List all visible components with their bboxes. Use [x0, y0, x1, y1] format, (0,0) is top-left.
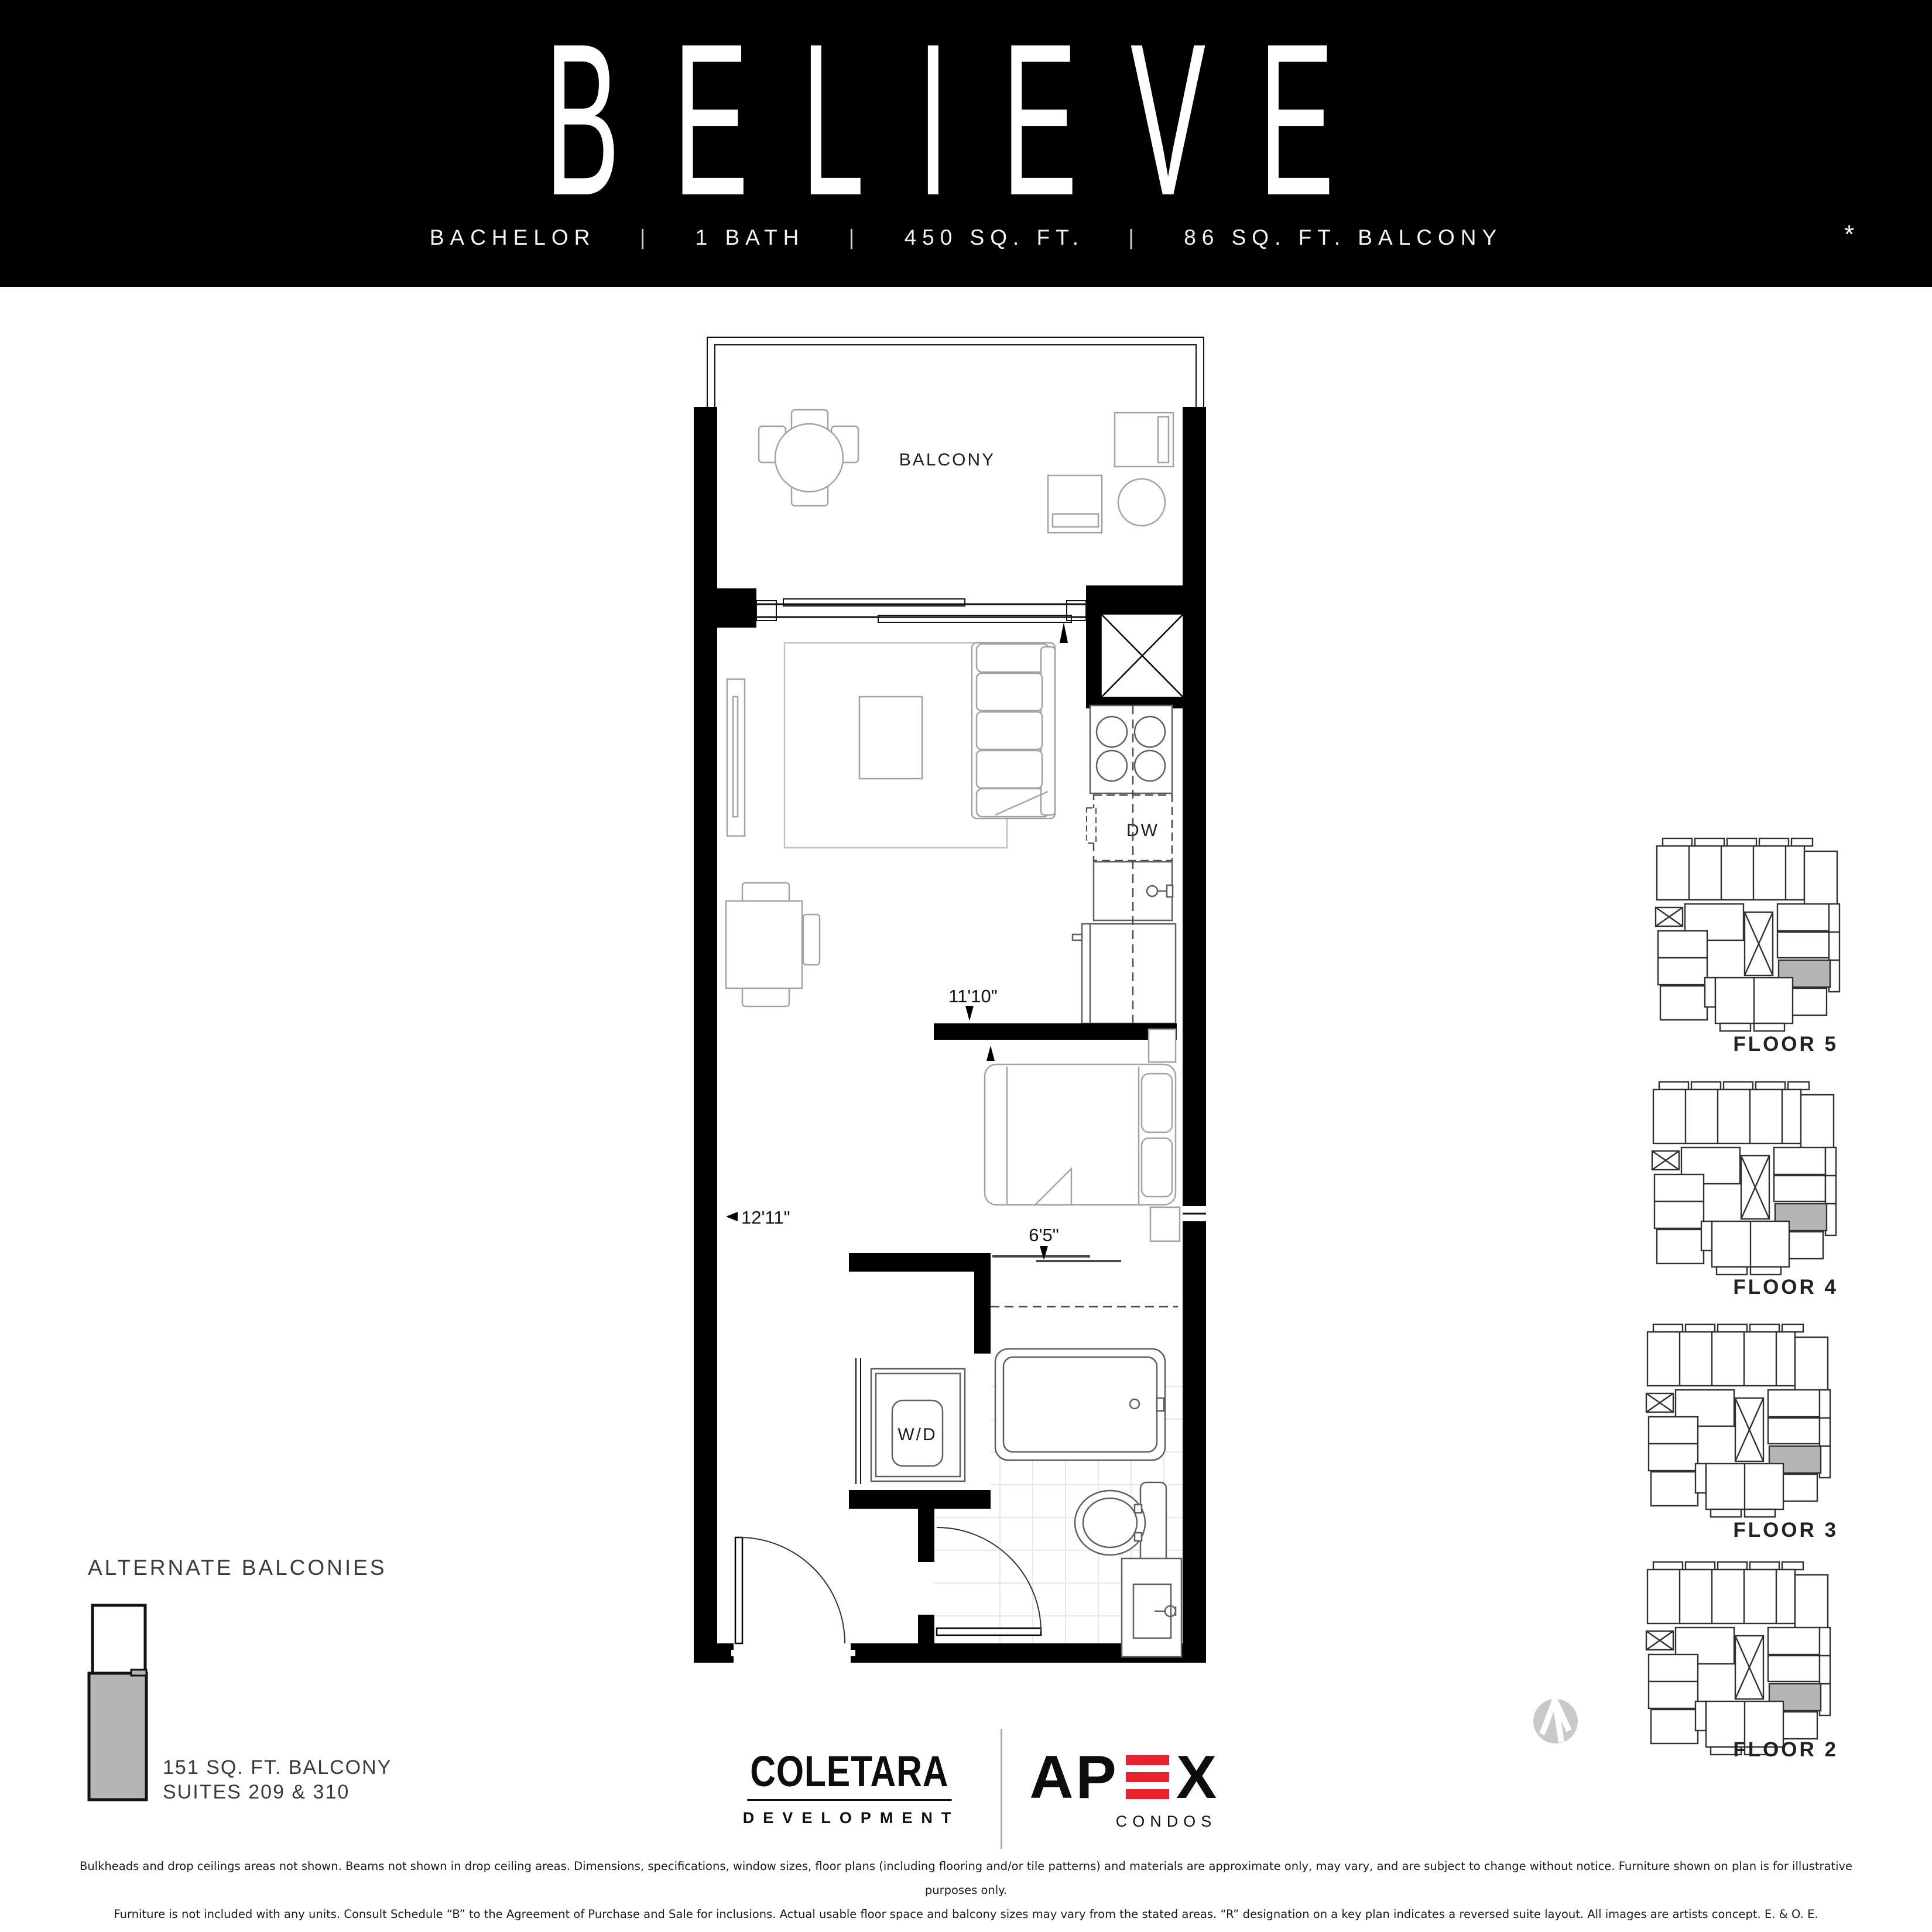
floor-3-label: FLOOR 3	[1733, 1519, 1838, 1542]
dishwasher-label: DW	[1126, 821, 1159, 840]
unit-specs: BACHELOR | 1 BATH | 450 SQ. FT. | 86 SQ.…	[430, 225, 1502, 249]
shaft-box	[1101, 614, 1184, 698]
nightstand	[1149, 1029, 1176, 1062]
bathroom-door	[937, 1527, 1041, 1635]
spec-bath: 1 BATH	[696, 225, 805, 249]
washer-dryer: W/D	[856, 1358, 965, 1484]
bathroom-vanity	[1122, 1558, 1181, 1657]
svg-text:6'5": 6'5"	[1029, 1225, 1059, 1245]
north-compass-icon	[1533, 1699, 1578, 1743]
svg-text:11'10": 11'10"	[948, 986, 998, 1006]
key-plan-floor-5: FLOOR 5	[1656, 838, 1839, 1056]
kitchen-stove	[1090, 705, 1172, 793]
legal-disclaimer: Bulkheads and drop ceilings areas not sh…	[59, 1855, 1873, 1927]
entry-door	[729, 1537, 855, 1663]
spec-balcony: 86 SQ. FT. BALCONY	[1184, 225, 1502, 249]
coletara-logo: COLETARA DEVELOPMENT	[725, 1750, 974, 1827]
key-plans: FLOOR 5 FLOOR 4 FLOOR 3 FLOOR 2	[1499, 820, 1873, 1791]
apex-x-text: X	[1176, 1747, 1219, 1808]
svg-text:12'11": 12'11"	[741, 1207, 790, 1228]
dimension-closet: 6'5"	[1029, 1225, 1059, 1260]
key-plan-floor-4: FLOOR 4	[1652, 1082, 1838, 1299]
alternate-balcony-area: 151 SQ. FT. BALCONY	[163, 1756, 392, 1779]
disclaimer-line-2: Furniture is not included with any units…	[59, 1903, 1873, 1927]
key-plan-floor-2: FLOOR 2	[1646, 1562, 1838, 1761]
kitchen-dishwasher: DW	[1087, 795, 1172, 861]
bed	[985, 1064, 1176, 1205]
apex-ap-text: AP	[1029, 1747, 1118, 1808]
washer-dryer-label: W/D	[898, 1425, 937, 1444]
closet	[991, 1256, 1178, 1307]
unit-floor-plan: BALCONY	[673, 316, 1247, 1698]
header-art: BELIEVE BACHELOR | 1 BATH | 450 SQ. FT. …	[0, 0, 1932, 287]
apex-e-bars-icon	[1126, 1755, 1169, 1799]
alternate-balcony-diagram	[89, 1605, 146, 1800]
sofa	[972, 643, 1055, 818]
alternate-balconies-panel: ALTERNATE BALCONIES 151 SQ. FT. BALCONY …	[59, 1522, 410, 1815]
spec-separator: |	[849, 225, 861, 249]
brand-logos: COLETARA DEVELOPMENT AP X CONDOS	[723, 1724, 1221, 1853]
header-banner: BELIEVE BACHELOR | 1 BATH | 450 SQ. FT. …	[0, 0, 1932, 287]
footnote-asterisk: *	[1844, 220, 1854, 249]
kitchen-wall	[934, 1023, 1177, 1040]
balcony-lounge-chairs	[1048, 413, 1173, 533]
key-plan-floor-3: FLOOR 3	[1646, 1324, 1838, 1542]
spec-separator: |	[640, 225, 652, 249]
page-title: BELIEVE	[544, 0, 1387, 241]
bathtub	[995, 1349, 1165, 1460]
balcony-dining-set	[759, 410, 858, 506]
balcony-label: BALCONY	[899, 450, 995, 470]
nightstand	[1150, 1207, 1180, 1241]
spec-separator: |	[1128, 225, 1140, 249]
tv-console	[727, 679, 745, 836]
dining-table	[726, 883, 820, 1006]
balcony-parapet	[707, 337, 1204, 410]
spec-area: 450 SQ. FT.	[905, 225, 1084, 249]
floor-5-label: FLOOR 5	[1733, 1033, 1838, 1056]
balcony-sliding-door	[756, 599, 1086, 643]
coletara-wordmark: COLETARA	[747, 1750, 951, 1801]
apex-logo: AP X CONDOS	[1029, 1747, 1219, 1831]
floor-4-label: FLOOR 4	[1733, 1276, 1838, 1299]
apex-condos-label: CONDOS	[1116, 1813, 1217, 1831]
alternate-balcony-suites: SUITES 209 & 310	[163, 1781, 350, 1803]
spec-type: BACHELOR	[430, 225, 596, 249]
floorplan-sheet: BELIEVE BACHELOR | 1 BATH | 450 SQ. FT. …	[0, 0, 1932, 1932]
toilet	[1075, 1482, 1166, 1563]
disclaimer-line-1: Bulkheads and drop ceilings areas not sh…	[59, 1855, 1873, 1903]
alternate-balconies-title: ALTERNATE BALCONIES	[88, 1556, 387, 1580]
coletara-development-label: DEVELOPMENT	[739, 1809, 960, 1827]
coffee-table	[859, 697, 922, 779]
logo-divider	[1001, 1729, 1002, 1849]
floor-2-label: FLOOR 2	[1733, 1738, 1838, 1761]
kitchen-fridge	[1073, 924, 1176, 1023]
dimension-living-length: 12'11"	[726, 1207, 790, 1228]
